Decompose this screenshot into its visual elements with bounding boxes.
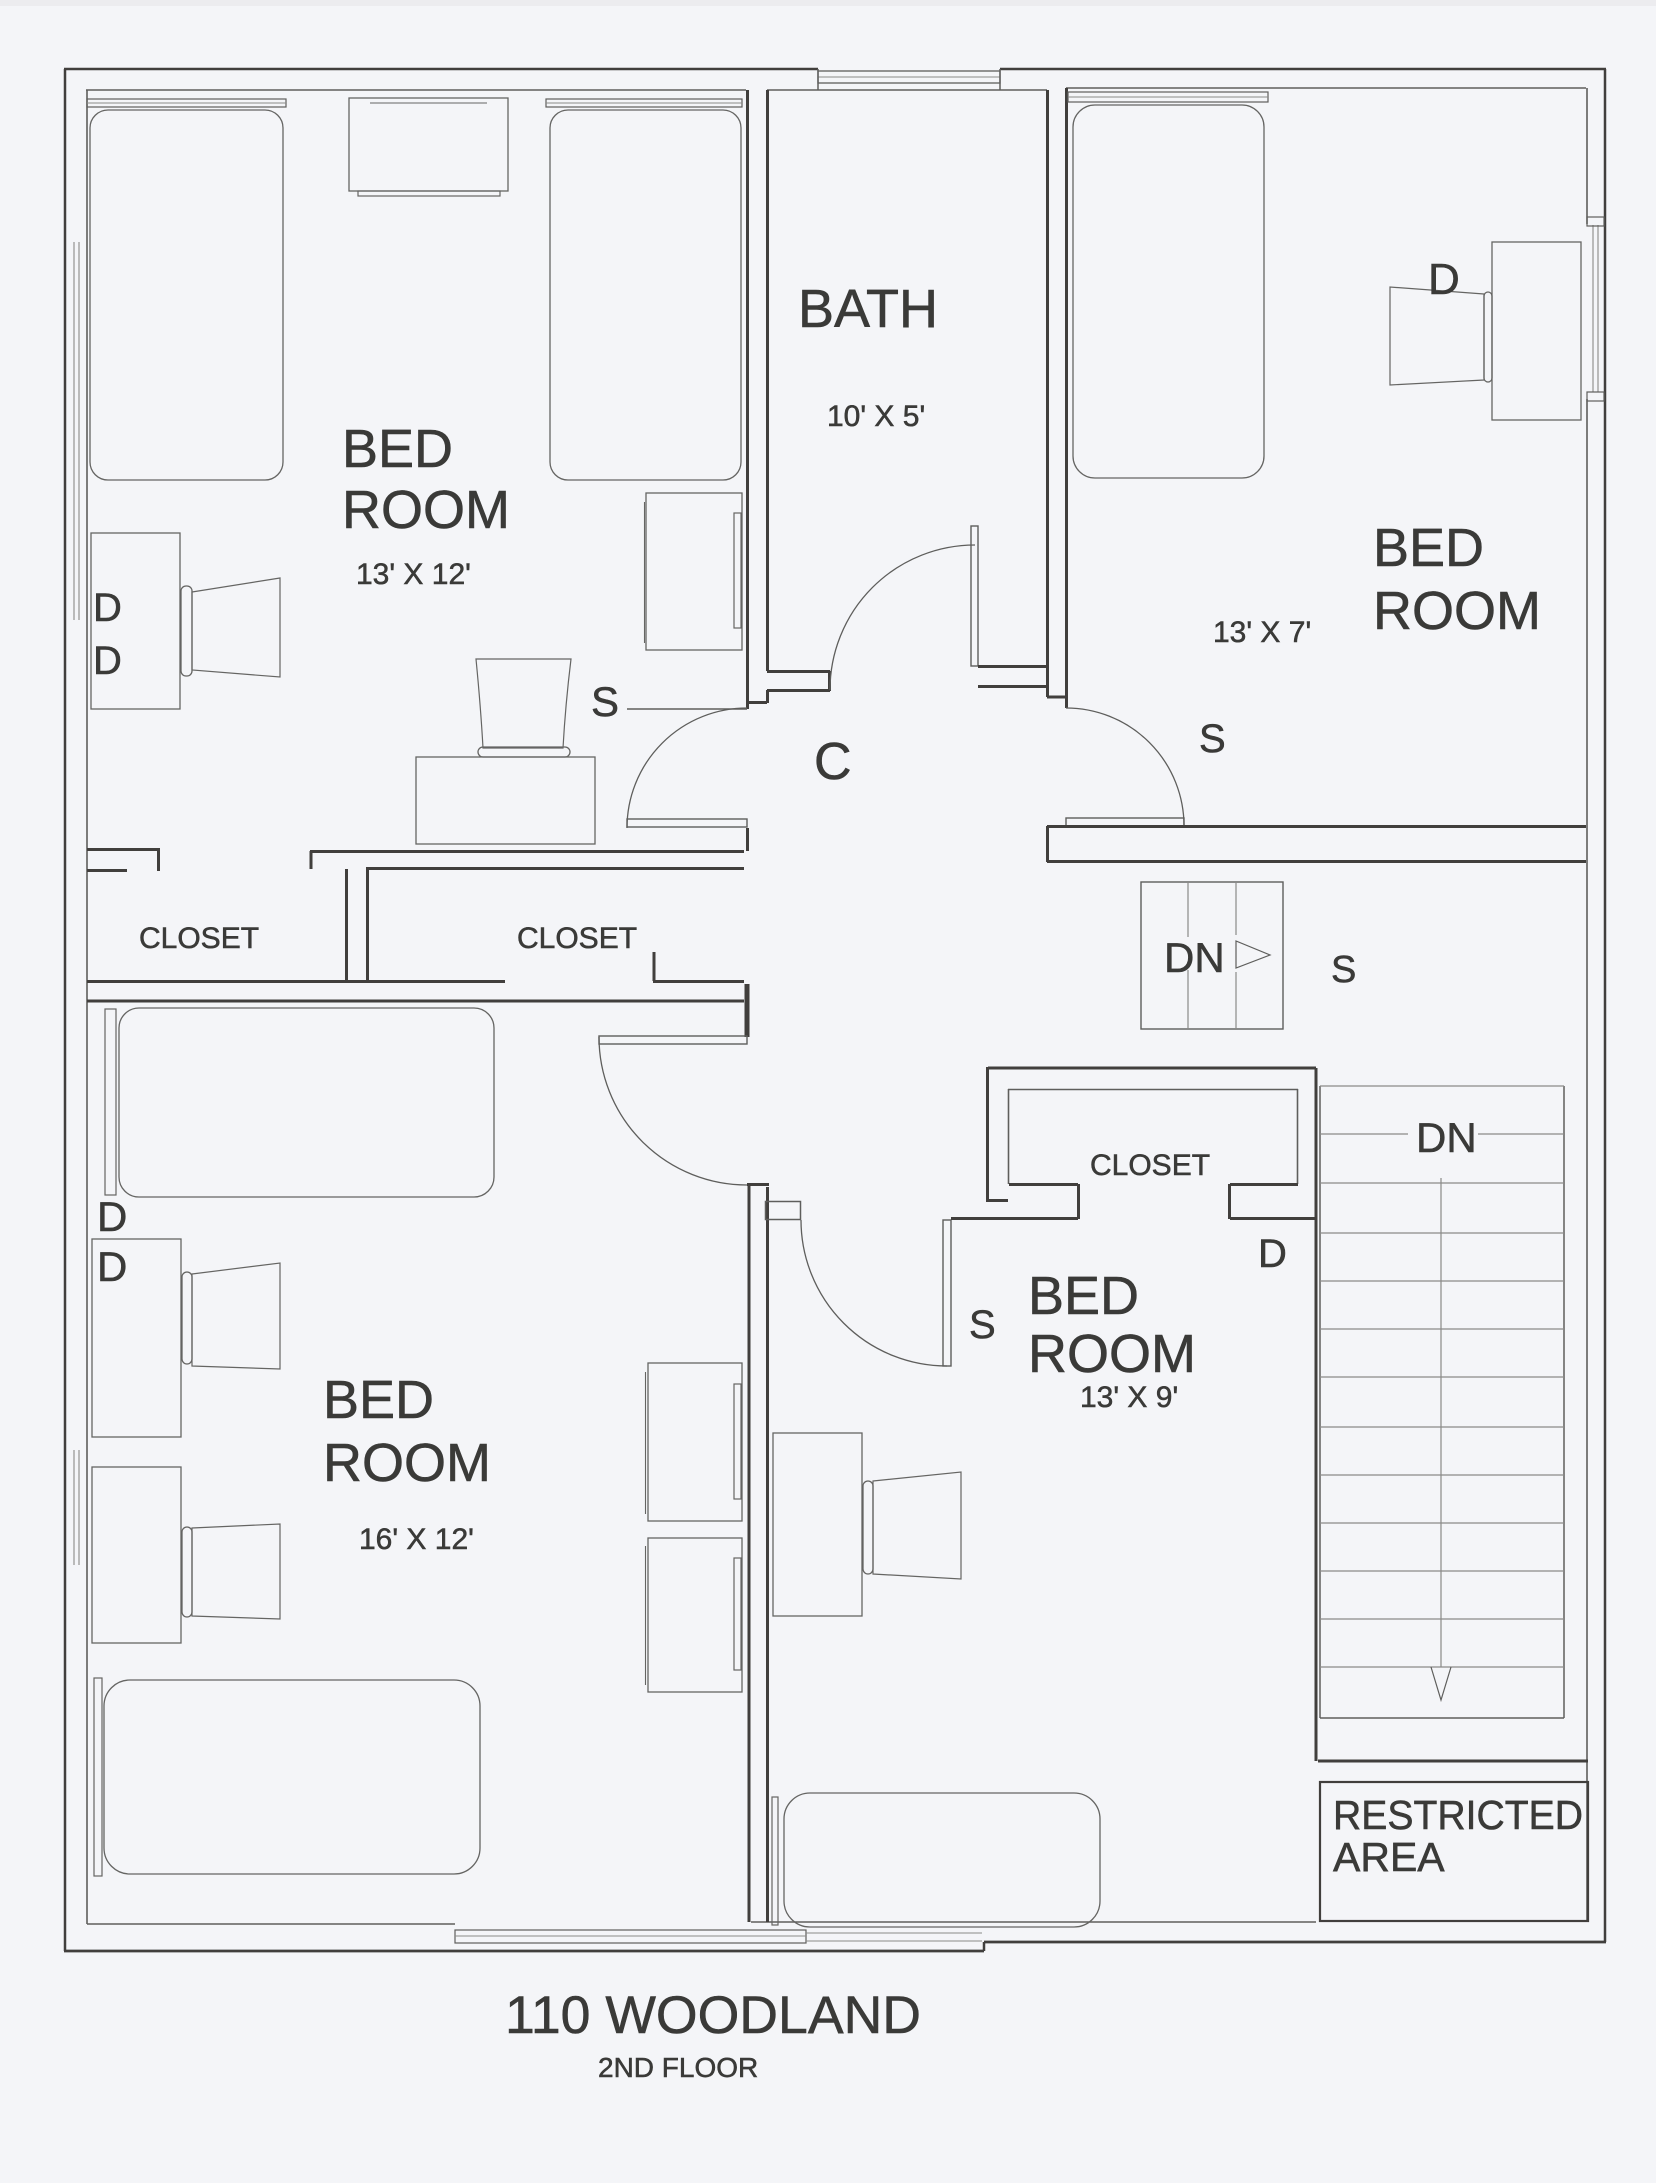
svg-text:S: S: [591, 678, 619, 725]
svg-text:10' X 5': 10' X 5': [827, 400, 925, 433]
svg-text:2ND FLOOR: 2ND FLOOR: [598, 2052, 758, 2083]
svg-text:13' X 7': 13' X 7': [1213, 616, 1311, 649]
svg-text:BED: BED: [342, 419, 453, 479]
svg-text:RESTRICTED: RESTRICTED: [1333, 1792, 1583, 1838]
svg-text:ROOM: ROOM: [323, 1433, 491, 1493]
svg-text:S: S: [1331, 949, 1356, 991]
svg-text:DN: DN: [1416, 1114, 1477, 1161]
svg-text:BATH: BATH: [798, 279, 938, 339]
svg-text:110 WOODLAND: 110 WOODLAND: [505, 1986, 921, 2045]
svg-text:ROOM: ROOM: [342, 480, 510, 540]
svg-text:BED: BED: [323, 1370, 434, 1430]
svg-text:D: D: [1258, 1232, 1287, 1276]
svg-text:D: D: [1428, 255, 1460, 304]
svg-text:D: D: [97, 1193, 127, 1240]
svg-text:D: D: [97, 1243, 127, 1290]
svg-text:AREA: AREA: [1333, 1834, 1445, 1880]
svg-text:D: D: [93, 586, 122, 630]
svg-text:S: S: [969, 1303, 996, 1347]
svg-text:13' X 9': 13' X 9': [1080, 1381, 1178, 1414]
svg-text:D: D: [93, 639, 122, 683]
svg-text:S: S: [1199, 717, 1226, 761]
svg-text:BED: BED: [1373, 518, 1484, 578]
svg-text:DN: DN: [1164, 934, 1225, 981]
svg-text:CLOSET: CLOSET: [139, 922, 259, 955]
svg-text:BED: BED: [1028, 1266, 1139, 1326]
svg-text:CLOSET: CLOSET: [1090, 1149, 1210, 1182]
svg-text:ROOM: ROOM: [1373, 581, 1541, 641]
svg-text:13' X 12': 13' X 12': [356, 558, 471, 591]
svg-text:CLOSET: CLOSET: [517, 922, 637, 955]
svg-text:ROOM: ROOM: [1028, 1324, 1196, 1384]
svg-text:C: C: [814, 733, 852, 791]
svg-text:16' X 12': 16' X 12': [359, 1523, 474, 1556]
